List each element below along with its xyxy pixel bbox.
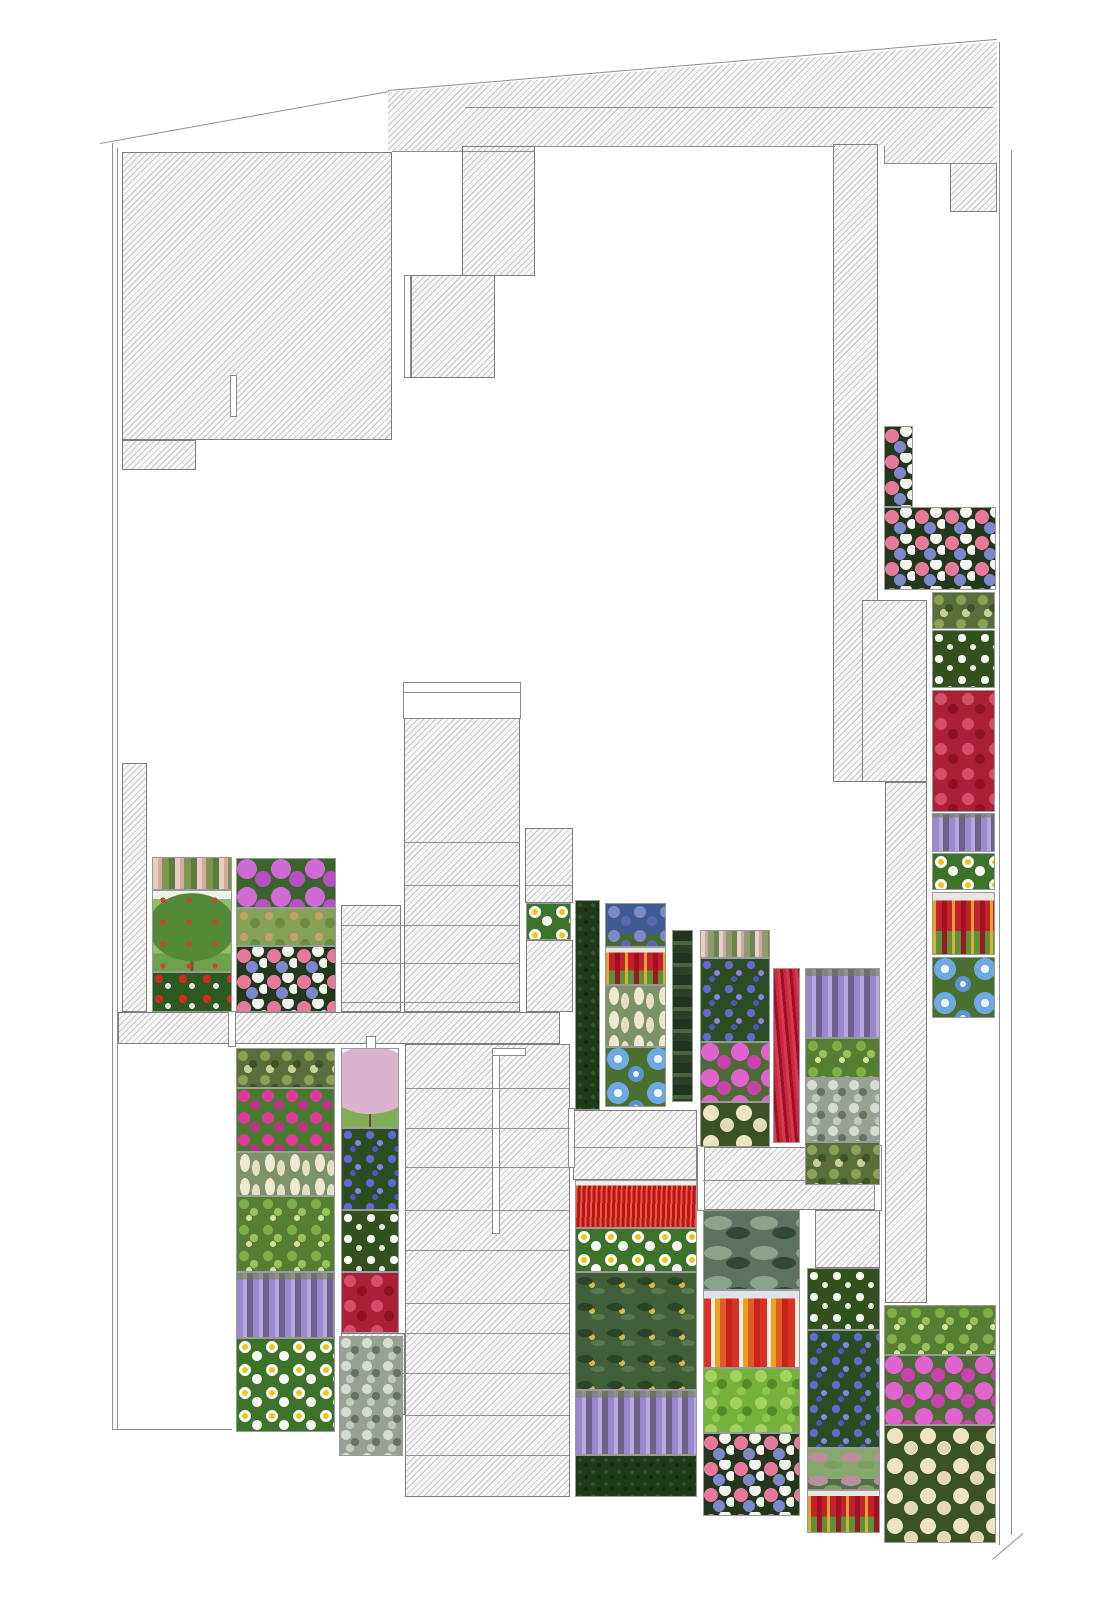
plant-tile-red-celosia-strip [773, 968, 800, 1143]
service-band-east-lower [885, 782, 927, 1303]
plant-tile-snapdragons [703, 1290, 800, 1368]
plant-tile-red-impatiens [152, 972, 232, 1012]
stair-line [573, 1147, 697, 1148]
building-block-northeast [950, 163, 997, 212]
plant-tile-pink-phlox [884, 1355, 996, 1425]
stair-tower-cap-line [404, 692, 521, 693]
plant-tile-variegated-ivy [932, 592, 995, 629]
boundary-left-outer [112, 143, 113, 1430]
boundary-bottom-west [113, 1429, 232, 1430]
roof-band-edge-c [884, 146, 885, 164]
stair-line [405, 1167, 570, 1168]
plant-tile-agave-yucca [703, 1210, 800, 1290]
boundary-right-outer [999, 42, 1000, 1545]
stair-line [405, 1415, 570, 1416]
plant-tile-blue-periwinkle [700, 958, 770, 1042]
path-slot-vertical [492, 1048, 500, 1234]
block-top-line [392, 151, 535, 152]
service-band-east-wide [862, 600, 927, 782]
roof-band-edge-b [884, 163, 997, 164]
stair-line [405, 1088, 570, 1089]
building-block-northwest-foot [122, 440, 196, 470]
retaining-edge-west [228, 1011, 236, 1047]
plant-tile-wisteria [932, 813, 995, 852]
plant-tile-green-foliage [884, 1305, 996, 1355]
plant-tile-white-globe-amaranth [884, 1425, 996, 1543]
plant-tile-boxwood-hedge [575, 900, 600, 1110]
plant-tile-purple-phlox [236, 858, 336, 908]
stair-line [405, 1250, 570, 1251]
roof-band-edge-a [535, 146, 835, 147]
stair-line [404, 963, 520, 964]
stair-tower-cap [403, 682, 521, 719]
plant-tile-clematis-mix [884, 426, 913, 507]
plant-tile-blue-periwinkle [341, 1128, 399, 1210]
terrace-step-left [341, 905, 401, 1012]
plant-tile-loquat-shrub [575, 1272, 697, 1390]
site-plan-canvas [0, 0, 1120, 1600]
plant-tile-pink-bellis [236, 1088, 335, 1152]
plant-tile-marguerite-daisies [932, 853, 995, 890]
terrace-step-right-upper [525, 828, 573, 903]
plant-tile-white-globe-amaranth [700, 1102, 770, 1147]
plant-tile-dusty-miller [805, 1078, 880, 1142]
plant-tile-wisteria [236, 1272, 335, 1338]
terrace-step-southeast [815, 1210, 880, 1268]
plant-tile-blue-campanula [605, 903, 666, 947]
plant-tile-blue-poppy [932, 957, 995, 1018]
stair-tower-upper [404, 718, 520, 1012]
plant-tile-cotoneaster [236, 908, 336, 946]
plant-tile-white-gardenia [932, 630, 995, 688]
roof-band-north [388, 40, 997, 163]
stair-line [525, 885, 573, 886]
plant-tile-cherry-tree [341, 1048, 399, 1128]
wall-strip-west [122, 763, 147, 1012]
stair-line [405, 1303, 570, 1304]
stair-line [405, 1373, 570, 1374]
stair-line [405, 1128, 570, 1129]
stair-line [404, 885, 520, 886]
plant-tile-green-foliage [805, 1038, 880, 1078]
stair-line [404, 1002, 520, 1003]
boundary-bottom-east-diagonal [992, 1533, 1023, 1559]
plant-tile-clematis-mix [236, 946, 336, 1012]
building-block-northwest [122, 152, 392, 440]
stair-core-north [462, 146, 535, 276]
stair-line [341, 963, 404, 964]
plant-tile-variegated-ivy [805, 1142, 880, 1185]
roof-band-inner-line [465, 107, 993, 108]
stair-line [405, 1210, 570, 1211]
plant-tile-green-foliage [236, 1196, 335, 1272]
plant-tile-silk-tree [807, 1448, 880, 1490]
stair-slot-north [404, 275, 411, 378]
plant-tile-pink-phlox [700, 1042, 770, 1102]
terrace-band-west [118, 1012, 560, 1044]
plant-tile-red-fountain-grass [575, 1180, 697, 1228]
plant-tile-red-celosia [807, 1490, 880, 1533]
plant-tile-clematis-mix [884, 507, 996, 590]
stair-line [405, 1333, 570, 1334]
plant-tile-apple-tree [152, 890, 232, 972]
stair-line [404, 842, 520, 843]
plant-tile-marguerite-daisies [526, 903, 571, 940]
stair-line [341, 1002, 404, 1003]
plant-tile-wisteria [805, 968, 880, 1038]
plant-tile-white-gardenia [341, 1210, 399, 1272]
plant-tile-blue-periwinkle [807, 1330, 880, 1448]
boundary-top-west [100, 91, 389, 144]
path-slot-top [492, 1048, 526, 1056]
plant-tile-white-gardenia [807, 1268, 880, 1330]
plant-tile-hollyhock-spikes [700, 930, 770, 958]
stair-line [405, 1455, 570, 1456]
plant-tile-white-astilbe [236, 1152, 335, 1196]
plant-tile-tree-canopy [703, 1368, 800, 1433]
plant-tile-dusty-miller [339, 1336, 403, 1456]
retaining-edge-east-a [697, 1145, 705, 1211]
plant-tile-boxwood-hedge [575, 1455, 697, 1497]
terrace-step-right-lower [526, 940, 573, 1012]
plant-tile-white-astilbe [605, 985, 666, 1047]
terrace-step-mid-east [573, 1110, 697, 1180]
boundary-right-inner [1011, 150, 1012, 1535]
retaining-edge-hedge [568, 1108, 575, 1168]
stair-tower-lower [405, 1044, 570, 1497]
plant-tile-clematis-mix [703, 1433, 800, 1516]
plant-tile-blue-poppy [605, 1047, 666, 1107]
stair-line [341, 925, 404, 926]
plant-tile-horse-chestnut [152, 857, 232, 890]
stair-line [404, 925, 520, 926]
boundary-left-inner [117, 148, 118, 1430]
plant-tile-red-celosia-bush [341, 1272, 399, 1333]
plant-tile-wisteria [575, 1390, 697, 1455]
roof-block-mid-north [411, 275, 495, 378]
plant-tile-marguerite-daisies [236, 1338, 335, 1432]
plant-tile-red-celosia [932, 892, 995, 955]
plant-tile-marguerite-daisies [575, 1228, 697, 1272]
plant-tile-dark-foliage-strip [672, 930, 693, 1102]
plant-tile-red-celosia-bush [932, 690, 995, 812]
plant-tile-variegated-ivy [236, 1048, 335, 1088]
roof-slit-northwest [230, 375, 237, 417]
plant-tile-red-celosia [605, 947, 666, 985]
